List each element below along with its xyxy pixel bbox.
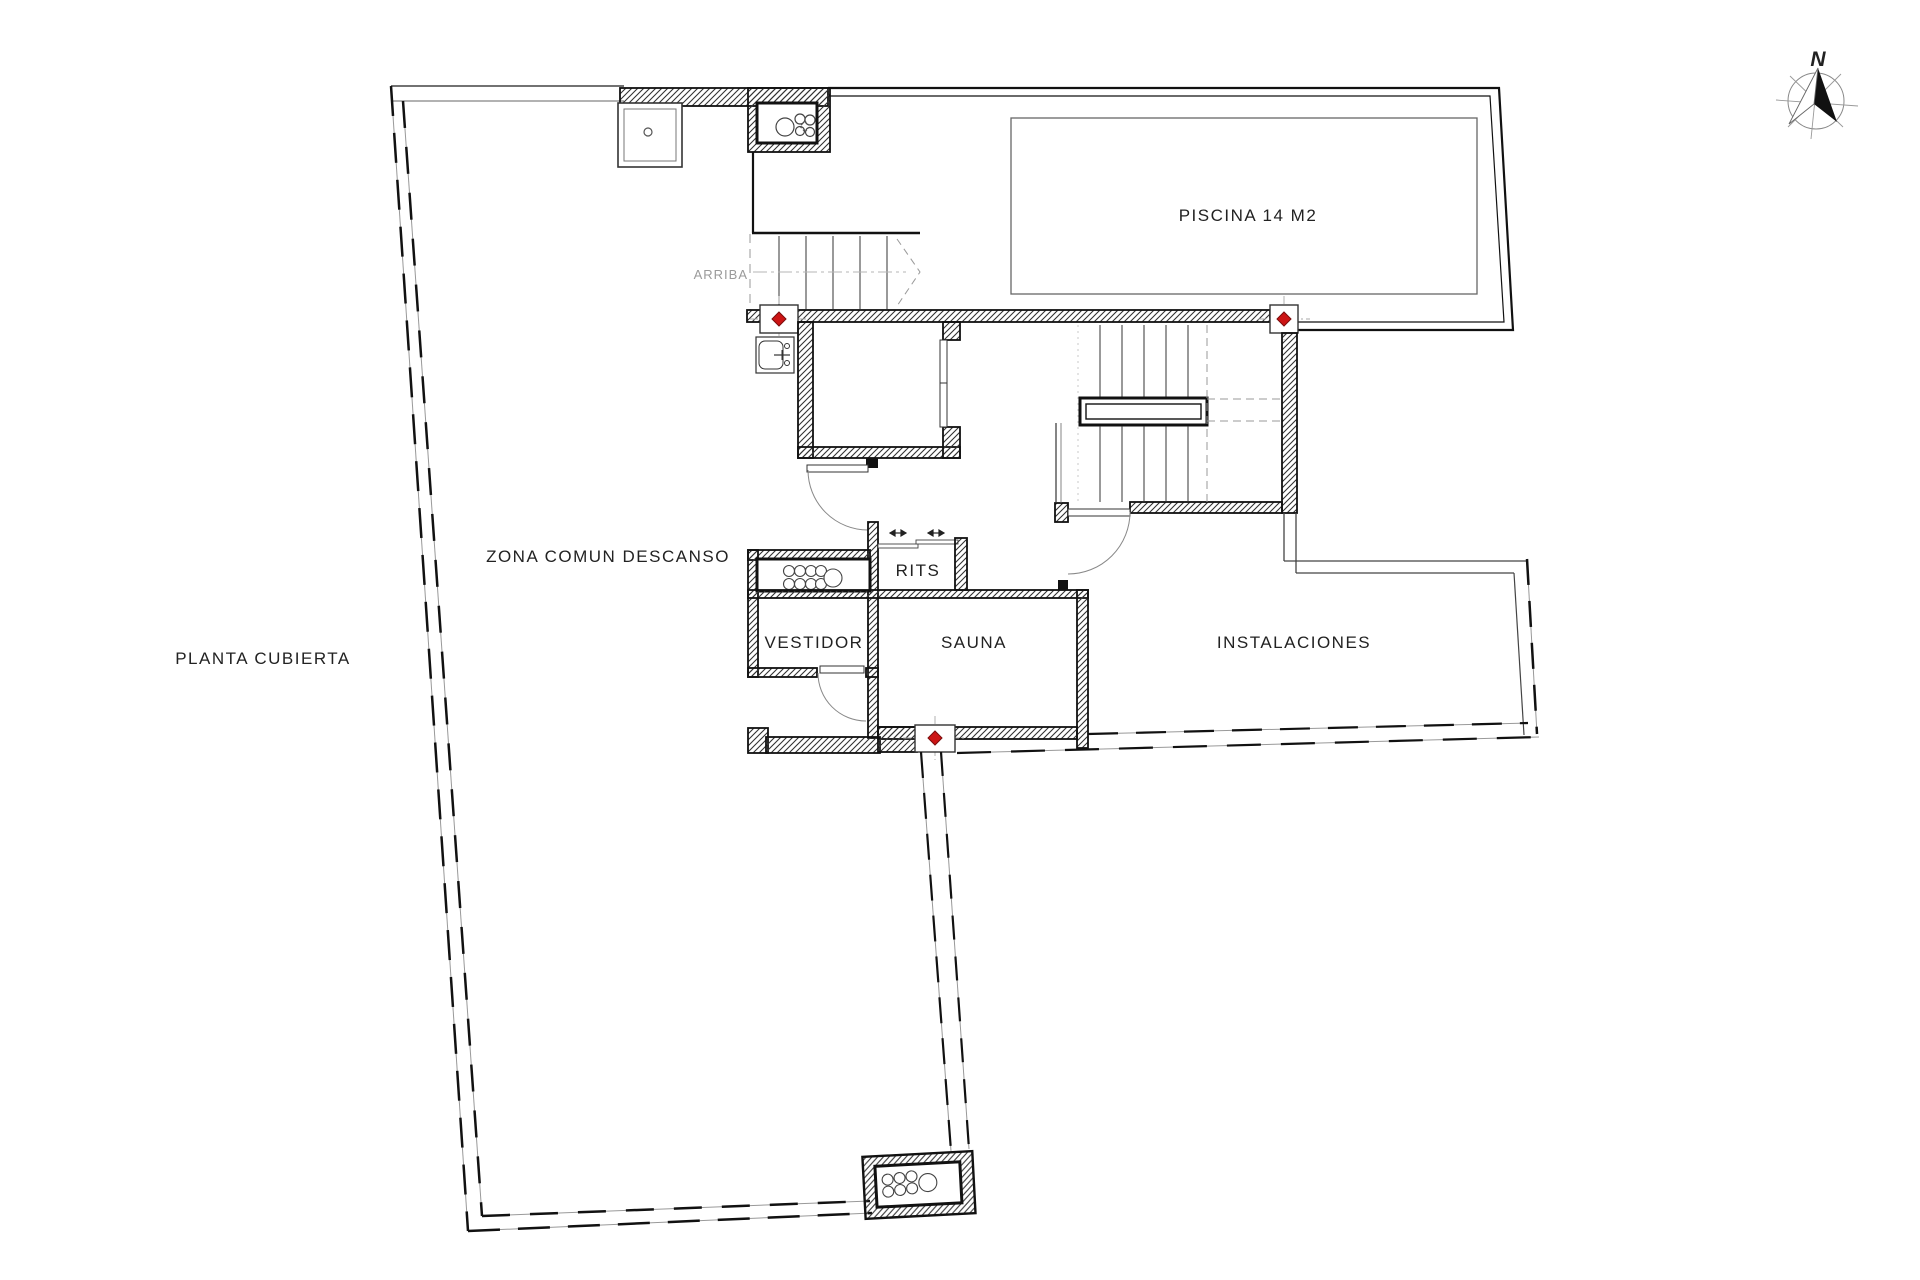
stairroom-step-block [1055,503,1068,522]
rits-sliding-door [878,530,958,548]
floor-title-label: PLANTA CUBIERTA [175,649,351,668]
service-rooms: RITS VESTIDOR SAUNA [748,522,1088,753]
main-staircase-room [1055,325,1297,574]
roof-drain-icon [757,103,817,143]
shower-tray-icon [618,103,682,167]
sauna-right-wall [1077,590,1088,748]
pool-deck: PISCINA 14 M2 [828,88,1513,330]
rits-label: RITS [896,561,941,580]
door-jamb-stub [1058,580,1068,590]
south-wall-step3 [878,727,917,752]
floor-plan-page: PISCINA 14 M2 [0,0,1920,1280]
south-wall-step1 [748,728,768,753]
shaft-bottom-door [807,465,868,530]
vestidor-label: VESTIDOR [765,633,864,652]
stairroom-bottom-wall [1130,502,1282,513]
sink-icon [756,337,794,373]
bottom-drain-grate-icon [862,1151,975,1219]
pool-label: PISCINA 14 M2 [1179,206,1318,225]
rits-right-wall [955,538,967,590]
north-compass-icon: N [1776,48,1858,139]
sauna-label: SAUNA [941,633,1007,652]
walkway [921,752,969,1151]
pool-deck-outline-inner [828,96,1504,322]
stairroom-door [1068,509,1130,574]
terrace-bottom-edge [468,1201,872,1231]
terrace-left-edge [391,86,482,1231]
stair-break-line [897,239,920,306]
vestidor-bottom-wall-right [866,668,878,677]
stairroom-right-wall [1282,333,1297,513]
instalaciones-label: INSTALACIONES [1217,633,1371,652]
instalaciones-boundary: INSTALACIONES [957,513,1539,753]
arriba-label: ARRIBA [694,267,748,282]
sauna-top-wall [748,590,1088,598]
south-wall-step2 [766,737,880,753]
vestidor-bottom-wall-left [748,668,817,677]
elevator-shaft-room [798,322,960,530]
deck-bottom-wall [747,310,1270,322]
main-stair-lower-treads [1100,426,1188,502]
terrace-boundary [391,86,872,1231]
zona-comun-label: ZONA COMUN DESCANSO [486,547,730,566]
stair-landing-rail [1080,398,1207,425]
vestidor-door [818,666,866,721]
slide-arrow-icon [928,530,944,536]
main-stair-upper-treads [1100,325,1188,397]
north-label: N [1810,48,1826,71]
slide-arrow-icon [890,530,906,536]
boiler-tubes-icon [757,559,870,591]
floor-plan-canvas: PISCINA 14 M2 [0,0,1920,1280]
arriba-staircase: ARRIBA [694,152,920,310]
